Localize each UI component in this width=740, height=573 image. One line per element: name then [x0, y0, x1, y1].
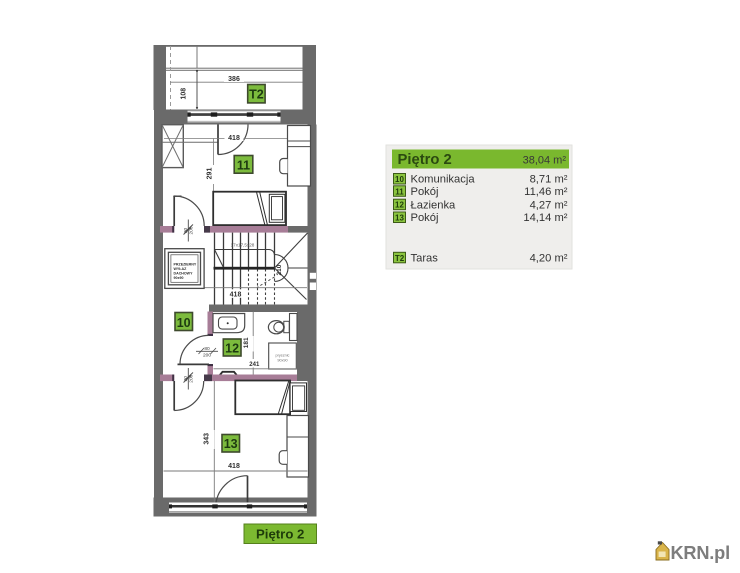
svg-text:T2: T2	[395, 254, 405, 263]
svg-text:38,04 m²: 38,04 m²	[523, 155, 567, 167]
svg-text:4,27 m²: 4,27 m²	[530, 199, 568, 211]
svg-text:181: 181	[243, 337, 250, 348]
svg-text:13: 13	[395, 214, 404, 223]
svg-text:17x17,5x28: 17x17,5x28	[231, 242, 255, 247]
svg-text:Pokój: Pokój	[411, 186, 439, 198]
svg-text:8,71 m²: 8,71 m²	[530, 174, 568, 186]
svg-text:200: 200	[203, 353, 211, 359]
svg-text:418: 418	[230, 291, 242, 298]
svg-text:10: 10	[177, 316, 191, 330]
svg-text:90x90: 90x90	[277, 358, 287, 362]
svg-text:418: 418	[228, 463, 240, 470]
svg-text:T2: T2	[249, 88, 264, 102]
svg-text:DACHOWY: DACHOWY	[174, 272, 194, 276]
svg-text:Piętro 2: Piętro 2	[256, 527, 304, 542]
svg-text:12: 12	[225, 342, 239, 356]
svg-text:Pokój: Pokój	[411, 212, 439, 224]
svg-text:10: 10	[395, 175, 404, 184]
svg-text:PRZEZIERNY: PRZEZIERNY	[174, 263, 197, 267]
svg-text:418: 418	[228, 135, 240, 142]
svg-text:Łazienka: Łazienka	[411, 199, 457, 211]
svg-text:prysznic: prysznic	[276, 354, 290, 358]
svg-text:90x90: 90x90	[174, 276, 184, 280]
svg-text:386: 386	[228, 76, 240, 83]
svg-text:11: 11	[395, 187, 404, 196]
svg-text:4,20 m²: 4,20 m²	[530, 253, 568, 265]
svg-text:12: 12	[395, 201, 404, 210]
svg-text:14,14 m²: 14,14 m²	[523, 212, 567, 224]
svg-text:108: 108	[181, 88, 188, 100]
svg-text:Taras: Taras	[411, 253, 439, 265]
svg-text:291: 291	[206, 168, 213, 180]
svg-text:80: 80	[204, 346, 210, 352]
svg-text:343: 343	[204, 433, 211, 445]
svg-text:WYŁAZ: WYŁAZ	[174, 267, 188, 271]
svg-text:Komunikacja: Komunikacja	[411, 174, 476, 186]
svg-text:KRN.pl: KRN.pl	[671, 543, 730, 563]
svg-text:Piętro 2: Piętro 2	[398, 152, 452, 168]
svg-text:210: 210	[276, 264, 283, 275]
svg-text:241: 241	[249, 362, 260, 368]
svg-text:11: 11	[237, 158, 250, 172]
svg-text:11,46 m²: 11,46 m²	[524, 186, 568, 198]
svg-text:13: 13	[224, 437, 238, 451]
